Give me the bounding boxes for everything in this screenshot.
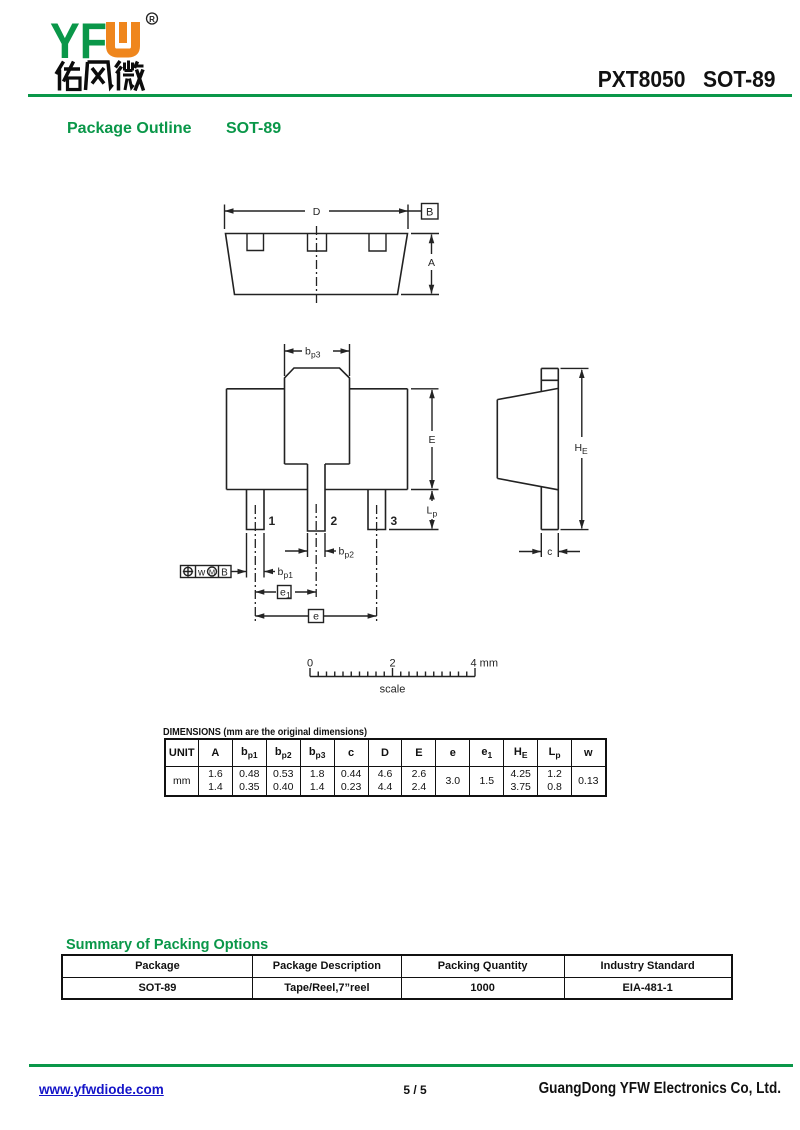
svg-text:c: c <box>547 547 552 558</box>
svg-text:p: p <box>433 509 438 519</box>
svg-text:p1: p1 <box>284 570 294 580</box>
svg-text:E: E <box>428 434 435 446</box>
svg-text:4 mm: 4 mm <box>471 658 499 670</box>
svg-text:H: H <box>575 442 583 454</box>
svg-text:1: 1 <box>269 514 276 528</box>
svg-text:w: w <box>197 568 206 579</box>
svg-text:p3: p3 <box>311 350 321 360</box>
svg-text:2: 2 <box>331 514 338 528</box>
svg-text:D: D <box>313 206 321 218</box>
svg-text:e: e <box>313 611 319 623</box>
svg-text:2: 2 <box>389 658 395 670</box>
svg-text:A: A <box>428 257 435 269</box>
svg-text:E: E <box>582 446 588 456</box>
svg-text:scale: scale <box>380 684 406 696</box>
svg-text:R: R <box>149 15 155 24</box>
svg-text:3: 3 <box>391 514 398 528</box>
svg-text:0: 0 <box>307 658 313 670</box>
svg-text:M: M <box>209 568 215 577</box>
svg-text:B: B <box>221 568 228 579</box>
svg-text:1: 1 <box>286 590 291 600</box>
svg-text:B: B <box>426 207 433 219</box>
svg-text:p2: p2 <box>345 550 355 560</box>
